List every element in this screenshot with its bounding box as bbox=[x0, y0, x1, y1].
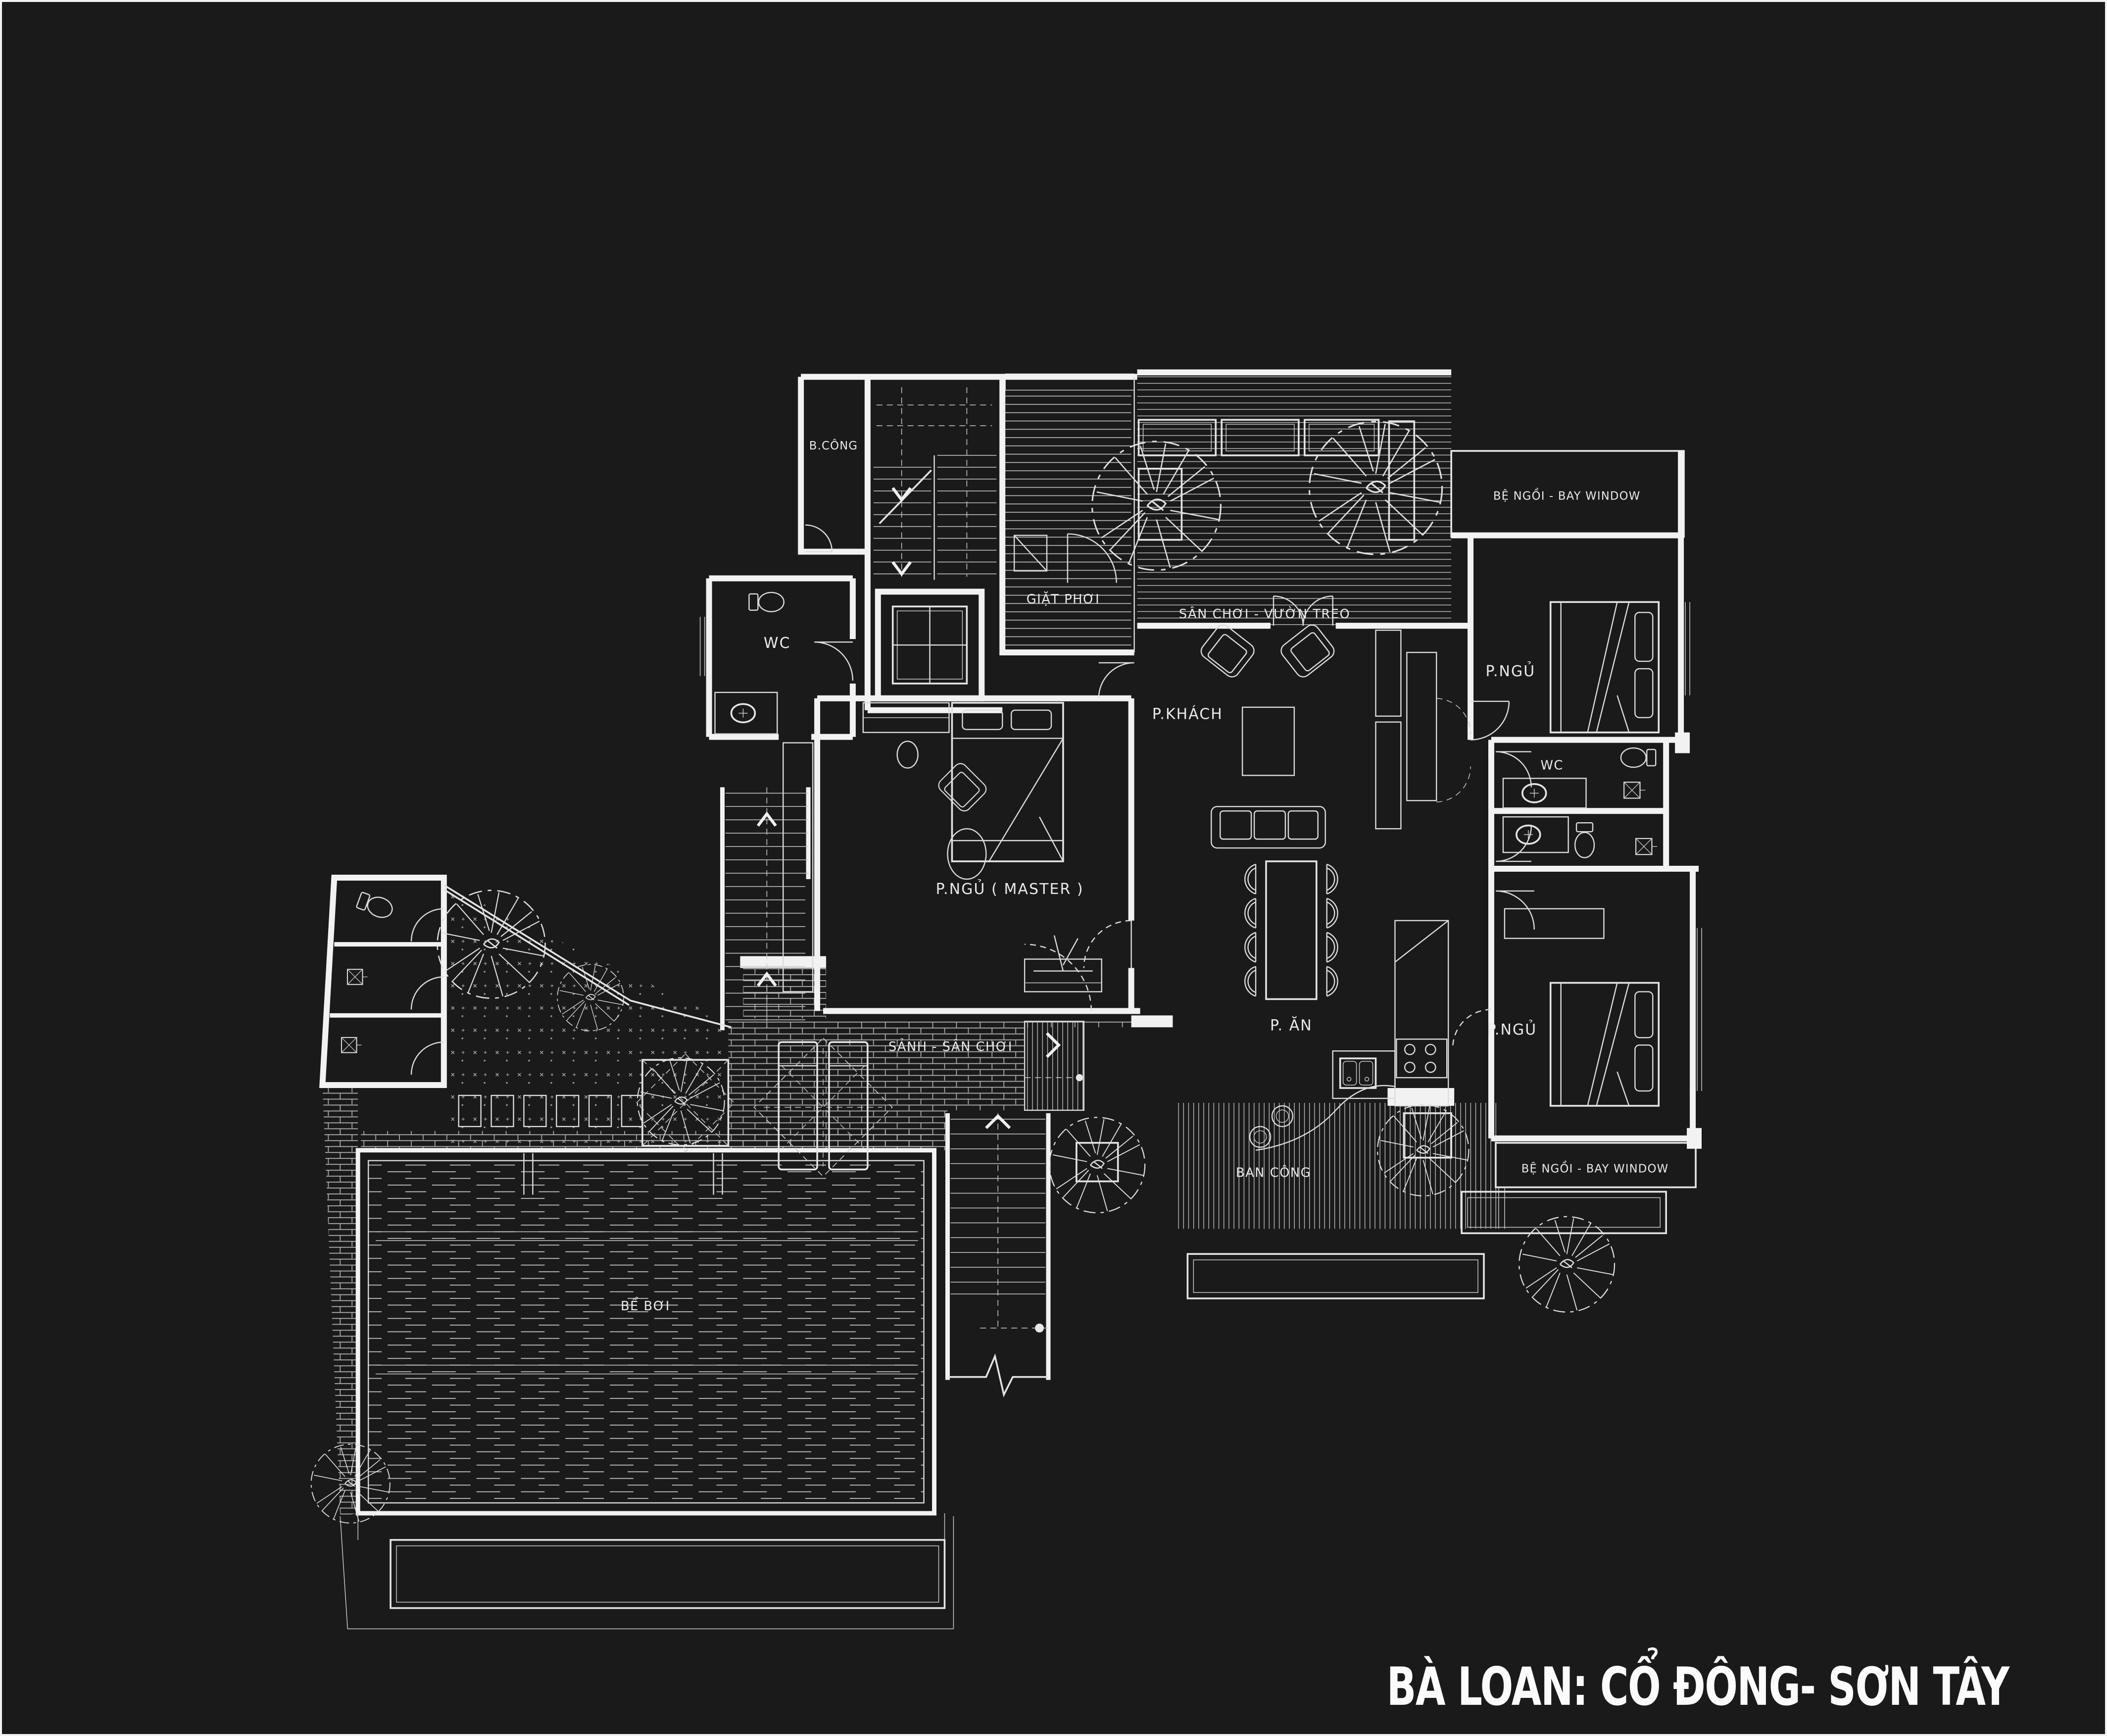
elevator-cab bbox=[893, 606, 967, 684]
dining-chair bbox=[1327, 898, 1338, 928]
shower-icon bbox=[1624, 782, 1645, 798]
ramp-deck bbox=[1025, 1021, 1084, 1110]
room-label-bay-top: BỆ NGỒI - BAY WINDOW bbox=[1493, 488, 1641, 503]
ground-fills-layer bbox=[322, 374, 1499, 1516]
room-label-bay-bottom: BỆ NGỒI - BAY WINDOW bbox=[1521, 1160, 1669, 1176]
main-staircase bbox=[874, 387, 996, 580]
armchair-icon bbox=[1198, 622, 1257, 680]
toilet-icon bbox=[749, 593, 784, 612]
vanity-counter bbox=[1503, 817, 1568, 852]
toilet-icon bbox=[356, 891, 395, 921]
pool-planter-strip bbox=[340, 1513, 953, 1629]
room-label-wc-right: WC bbox=[1540, 758, 1563, 773]
wardrobe-bottom bbox=[1505, 909, 1604, 939]
rug-oval bbox=[947, 829, 986, 879]
basin-icon bbox=[1522, 784, 1546, 802]
armchair-icon bbox=[936, 761, 989, 814]
toilet-icon bbox=[1575, 823, 1594, 857]
room-label-dining: P. ĂN bbox=[1270, 1016, 1313, 1034]
shower-icon bbox=[1636, 839, 1657, 854]
dining-chair bbox=[1245, 864, 1256, 894]
floor-plan-canvas: B.CÔNG GIẶT PHƠI SÂN CHƠI - VƯỜN TREO BỆ… bbox=[2, 2, 2105, 1734]
dining-chair bbox=[1327, 967, 1338, 996]
room-label-pool: BỂ BƠI bbox=[621, 1296, 670, 1314]
room-label-playground: SÂN CHƠI - VƯỜN TREO bbox=[1179, 606, 1351, 622]
armchair-icon bbox=[1278, 622, 1337, 680]
bed-icon bbox=[1551, 983, 1659, 1105]
master-tv-console bbox=[1025, 936, 1102, 992]
shower-icon bbox=[342, 1038, 362, 1053]
room-label-bedroom-bot: P.NGỦ bbox=[1487, 1019, 1537, 1039]
dining-chair bbox=[1245, 898, 1256, 928]
pool-rooms-outline bbox=[322, 878, 443, 1085]
dining-chair bbox=[1327, 864, 1338, 894]
dining-table bbox=[1266, 861, 1317, 999]
master-bed-icon bbox=[863, 703, 1063, 861]
playdeck bbox=[1137, 375, 1452, 626]
room-label-wc-left: WC bbox=[764, 635, 791, 652]
laundry-deck bbox=[1005, 390, 1131, 652]
plan-title: BÀ LOAN: CỔ ĐÔNG- SƠN TÂY bbox=[1386, 1656, 2009, 1717]
brick-path-west bbox=[322, 1085, 358, 1516]
shower-icon bbox=[347, 969, 368, 985]
dining-chair bbox=[1245, 933, 1256, 962]
tree-icon bbox=[1519, 1217, 1615, 1312]
basin-icon bbox=[731, 704, 755, 722]
pool-water bbox=[368, 1161, 924, 1503]
coffee-table bbox=[1242, 707, 1294, 776]
garden-staircase bbox=[947, 1113, 1048, 1395]
sofa-icon bbox=[1211, 806, 1325, 848]
room-label-bedroom-top: P.NGỦ bbox=[1485, 661, 1535, 680]
tv-cabinet bbox=[1376, 630, 1471, 829]
toilet-icon bbox=[1621, 748, 1656, 767]
pool-walkway bbox=[361, 1131, 931, 1150]
room-label-master: P.NGỦ ( MASTER ) bbox=[936, 879, 1084, 898]
tree-icon bbox=[1049, 1117, 1145, 1213]
vanity-counter bbox=[1503, 778, 1586, 808]
dining-chair bbox=[1245, 967, 1256, 996]
room-label-balcony: BAN CÔNG bbox=[1236, 1164, 1311, 1181]
bed-icon bbox=[1551, 602, 1659, 732]
room-label-living: P.KHÁCH bbox=[1152, 705, 1223, 723]
room-label-lobby: SẢNH - SÂN CHƠI bbox=[888, 1038, 1013, 1054]
room-label-bcong: B.CÔNG bbox=[809, 439, 858, 452]
floor-plan-sheet: B.CÔNG GIẶT PHƠI SÂN CHƠI - VƯỜN TREO BỆ… bbox=[0, 0, 2107, 1736]
room-label-laundry: GIẶT PHƠI bbox=[1027, 591, 1100, 607]
dining-chair bbox=[1327, 933, 1338, 962]
garden-grass bbox=[444, 885, 729, 1150]
stool-oval bbox=[897, 742, 918, 768]
